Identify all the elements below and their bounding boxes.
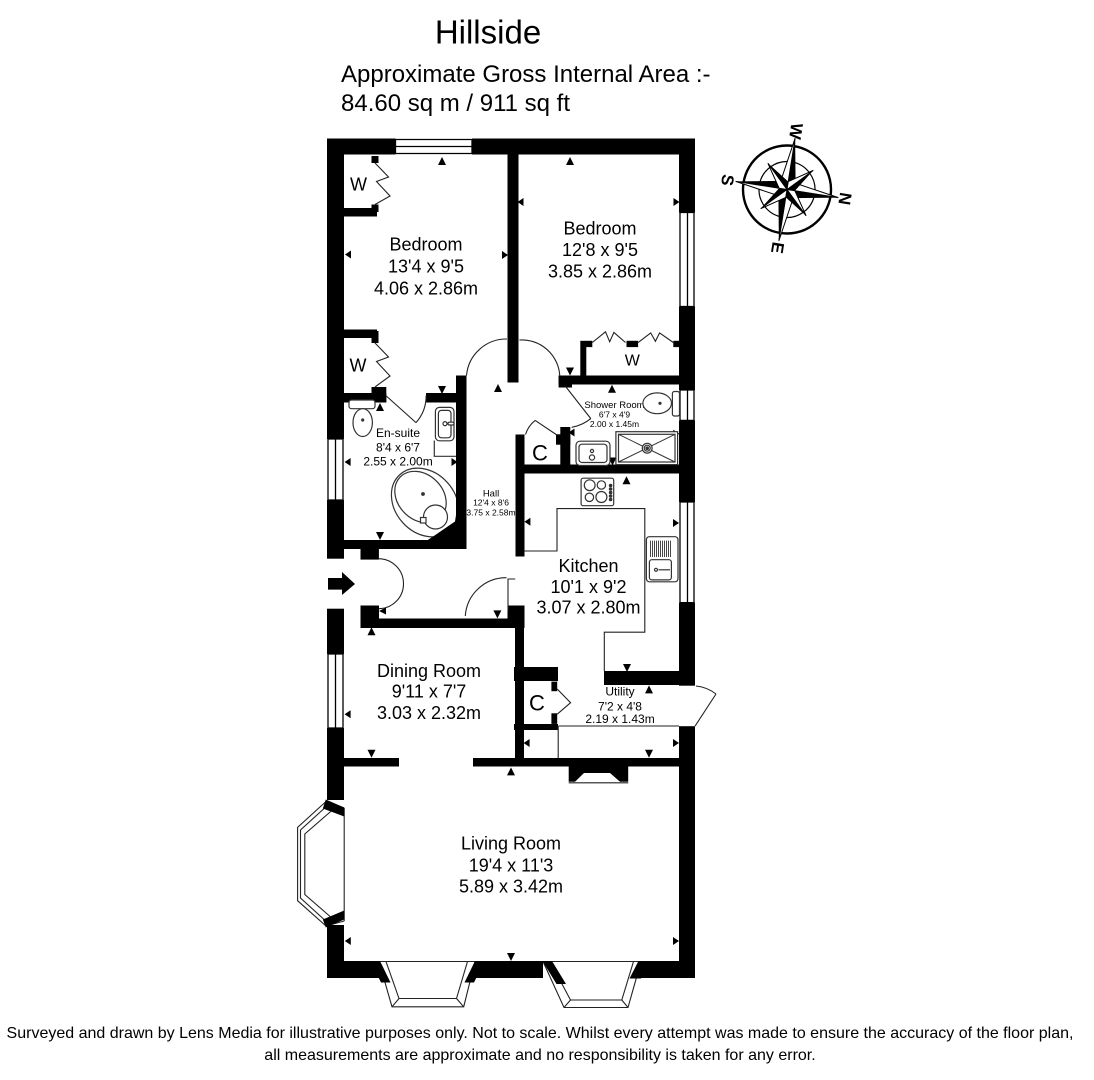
svg-text:3.75 x 2.58m: 3.75 x 2.58m (466, 508, 515, 518)
svg-text:12'4 x 8'6: 12'4 x 8'6 (473, 498, 509, 508)
svg-text:Approximate Gross Internal Are: Approximate Gross Internal Area :- (341, 61, 711, 88)
svg-text:Utility: Utility (605, 684, 634, 698)
svg-text:En-suite: En-suite (376, 426, 420, 440)
svg-text:C: C (532, 441, 548, 466)
svg-text:C: C (529, 691, 545, 716)
svg-text:Kitchen: Kitchen (558, 556, 618, 576)
svg-text:Surveyed and drawn by Lens Med: Surveyed and drawn by Lens Media for ill… (7, 1025, 1074, 1042)
svg-text:4.06 x 2.86m: 4.06 x 2.86m (374, 279, 478, 299)
svg-text:19'4 x 11'3: 19'4 x 11'3 (469, 855, 554, 875)
svg-text:W: W (350, 356, 367, 376)
svg-text:Living Room: Living Room (461, 834, 561, 854)
svg-text:2.19 x 1.43m: 2.19 x 1.43m (585, 712, 654, 726)
svg-text:13'4 x 9'5: 13'4 x 9'5 (388, 257, 464, 277)
svg-text:Bedroom: Bedroom (389, 235, 462, 255)
svg-text:6'7 x 4'9: 6'7 x 4'9 (599, 409, 630, 419)
svg-text:W: W (625, 353, 641, 370)
svg-text:12'8 x 9'5: 12'8 x 9'5 (562, 240, 638, 260)
svg-text:W: W (350, 175, 367, 195)
svg-text:3.85 x 2.86m: 3.85 x 2.86m (548, 262, 652, 282)
svg-text:8'4 x 6'7: 8'4 x 6'7 (376, 440, 420, 454)
svg-text:9'11 x 7'7: 9'11 x 7'7 (392, 682, 467, 702)
svg-text:84.60 sq m / 911 sq ft: 84.60 sq m / 911 sq ft (341, 90, 570, 117)
svg-text:10'1 x 9'2: 10'1 x 9'2 (551, 577, 627, 597)
svg-text:3.07 x 2.80m: 3.07 x 2.80m (536, 597, 640, 617)
svg-text:Dining Room: Dining Room (377, 661, 481, 681)
svg-text:5.89 x 3.42m: 5.89 x 3.42m (459, 876, 563, 896)
svg-text:Bedroom: Bedroom (563, 219, 636, 239)
svg-text:2.00 x 1.45m: 2.00 x 1.45m (590, 419, 639, 429)
svg-text:all measurements are approxima: all measurements are approximate and no … (264, 1047, 815, 1064)
svg-text:2.55 x 2.00m: 2.55 x 2.00m (363, 455, 432, 469)
svg-text:3.03 x 2.32m: 3.03 x 2.32m (377, 703, 481, 723)
svg-text:Hillside: Hillside (435, 14, 541, 51)
svg-text:7'2 x 4'8: 7'2 x 4'8 (598, 699, 642, 713)
